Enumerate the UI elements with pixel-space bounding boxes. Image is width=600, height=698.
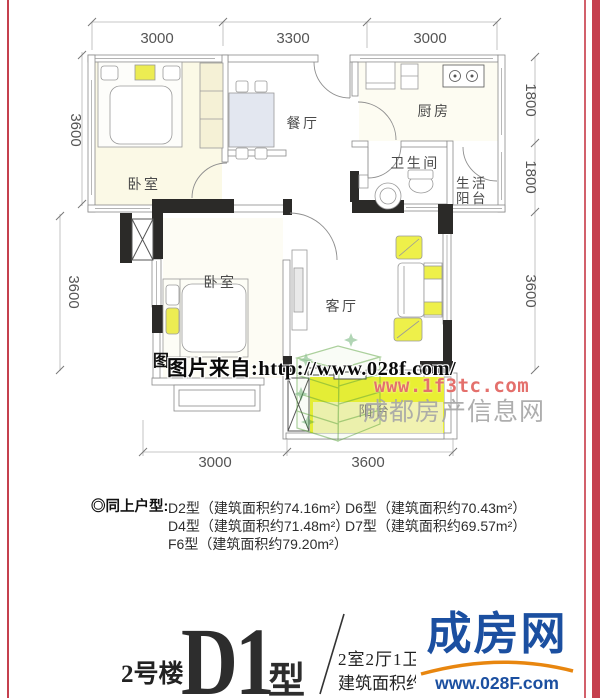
watermark-site-name: 成都房产信息网	[363, 392, 545, 428]
unit-code: D1	[181, 606, 272, 698]
label-living: 客厅	[326, 298, 359, 314]
similar-unit-d6: D6型（建筑面积约70.43m²）	[345, 501, 526, 515]
dim-top-2: 3300	[276, 30, 309, 47]
similar-units-label: ◎同上户型:	[91, 500, 168, 515]
similar-unit-d2: D2型（建筑面积约74.16m²）	[168, 501, 349, 515]
wardrobe	[200, 63, 223, 148]
label-bedroom-2: 卧室	[204, 274, 237, 290]
label-bathroom: 卫生间	[390, 155, 440, 171]
similar-unit-d4: D4型（建筑面积约71.48m²）	[168, 519, 349, 533]
building-number: 2号楼	[121, 654, 184, 690]
sofa	[398, 263, 424, 317]
label-service-balcony-2: 阳台	[456, 191, 488, 206]
site-logo: 成房网 www.028F.com	[416, 609, 578, 697]
label-dining: 餐厅	[287, 115, 320, 131]
unit-suffix: 型	[268, 650, 305, 698]
label-kitchen: 厨房	[418, 103, 451, 119]
similar-unit-f6: F6型（建筑面积约79.20m²）	[168, 537, 348, 551]
label-bedroom-1: 卧室	[128, 176, 161, 192]
dim-top-1: 3000	[140, 30, 173, 47]
dim-top-3: 3000	[413, 30, 446, 47]
dim-right-1: 1800	[522, 83, 539, 116]
dim-bottom-1: 3000	[198, 454, 231, 470]
floorplan-page: 3000 3300 3000 3600 3600 1800 1800 3600 …	[0, 0, 600, 698]
site-logo-name: 成房网	[416, 609, 578, 659]
dim-right-2: 1800	[522, 160, 539, 193]
fridge	[366, 62, 395, 89]
dining-table	[229, 93, 274, 147]
unit-layout: 2室2厅1卫	[338, 645, 421, 670]
dim-bottom-2: 3600	[351, 454, 384, 470]
similar-unit-d7: D7型（建筑面积约69.57m²）	[345, 519, 526, 533]
dim-left-1: 3600	[67, 113, 84, 146]
dim-left-2: 3600	[65, 275, 82, 308]
dim-right-3: 3600	[522, 274, 539, 307]
site-logo-url: www.028F.com	[416, 675, 578, 693]
kitchen-cabinet	[401, 64, 418, 89]
wash-basin	[375, 183, 401, 209]
label-service-balcony-1: 生活	[456, 176, 488, 191]
